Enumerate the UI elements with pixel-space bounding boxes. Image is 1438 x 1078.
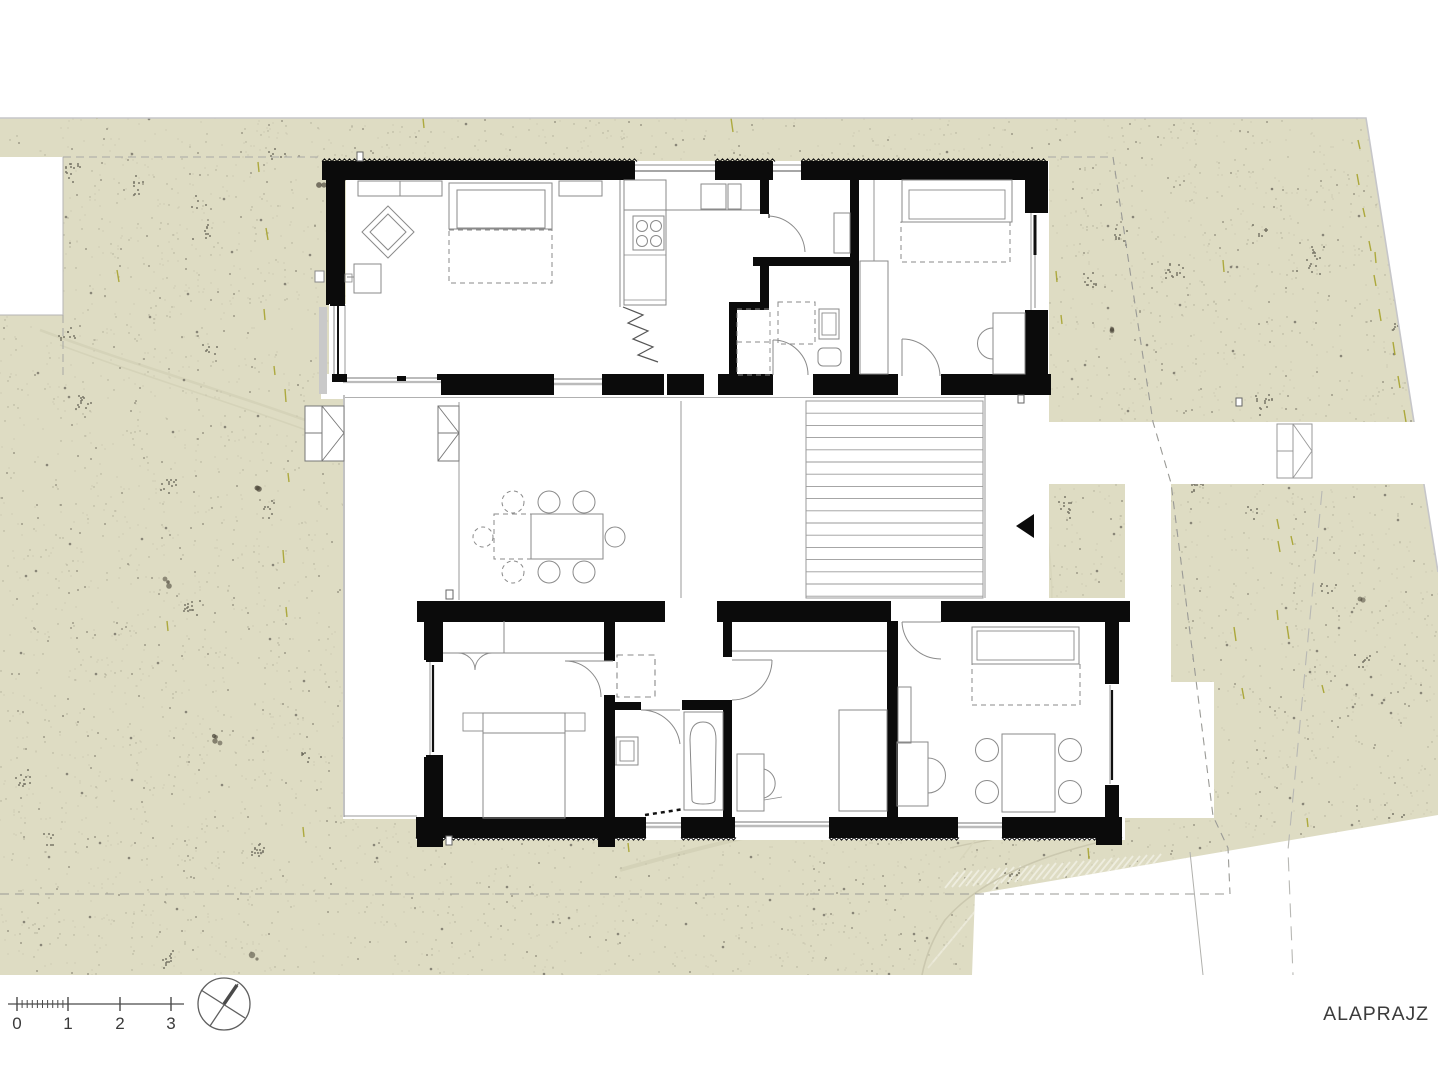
svg-text:2: 2 (115, 1014, 124, 1033)
svg-text:3: 3 (166, 1014, 175, 1033)
svg-text:0: 0 (12, 1014, 21, 1033)
svg-text:1: 1 (63, 1014, 72, 1033)
svg-text:ALAPRAJZ: ALAPRAJZ (1323, 1003, 1429, 1025)
